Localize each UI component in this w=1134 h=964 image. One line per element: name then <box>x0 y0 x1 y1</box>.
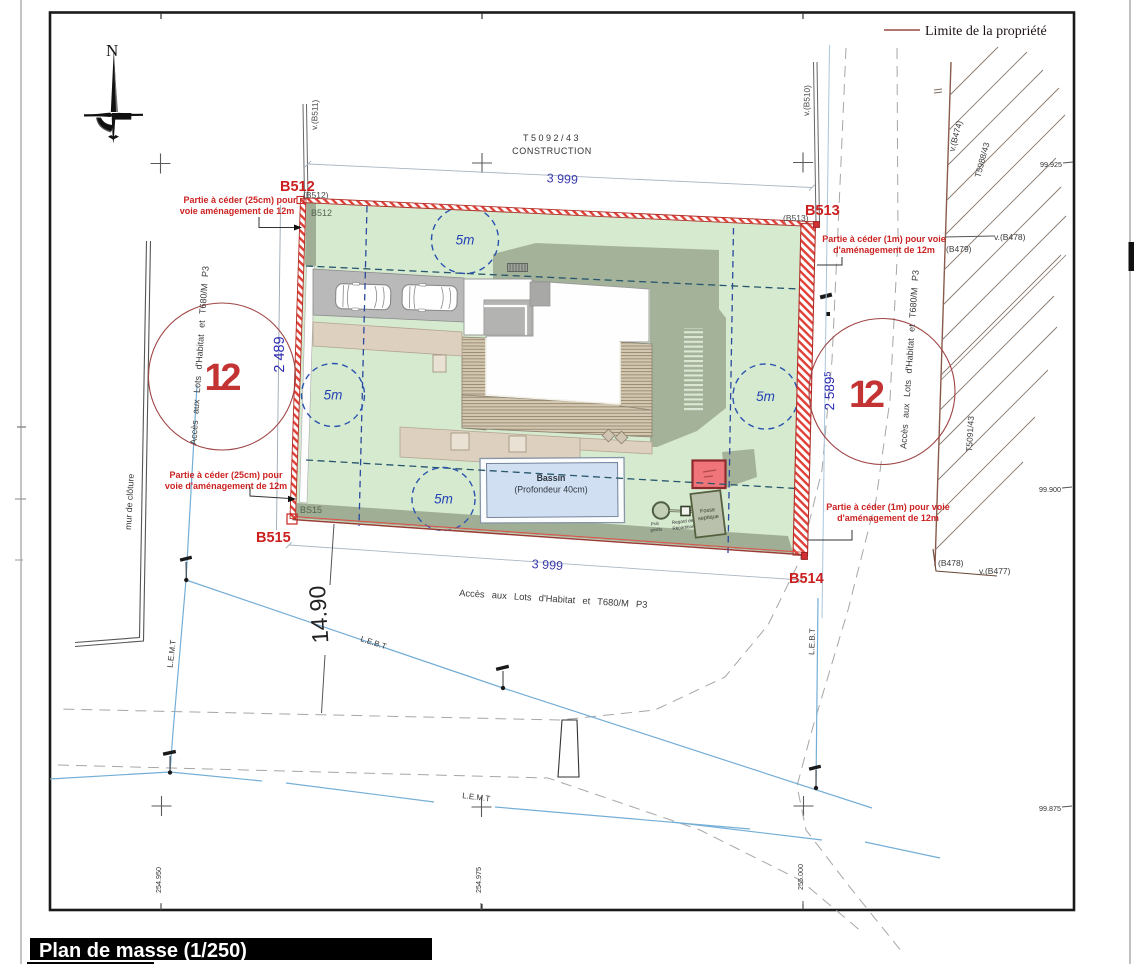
svg-text:99.925: 99.925 <box>1040 160 1062 169</box>
svg-text:voie aménagement de 12m: voie aménagement de 12m <box>180 206 295 216</box>
svg-text:(B478): (B478) <box>938 558 964 568</box>
svg-text:d'aménagement de 12m: d'aménagement de 12m <box>833 245 935 255</box>
svg-text:Partie à céder (1m) pour voie: Partie à céder (1m) pour voie <box>826 502 950 512</box>
svg-text:12: 12 <box>205 357 242 399</box>
svg-text:B513: B513 <box>805 203 840 219</box>
svg-text:254.950: 254.950 <box>154 867 163 893</box>
svg-text:5m: 5m <box>756 389 775 404</box>
svg-text:2 5895: 2 5895 <box>822 372 837 411</box>
svg-text:(B479): (B479) <box>946 244 972 254</box>
svg-text:254.975: 254.975 <box>474 867 483 893</box>
svg-text:5m: 5m <box>324 388 343 403</box>
svg-text:255.000: 255.000 <box>796 864 805 890</box>
svg-text:Accès aux Lots d'Habitat e: Accès aux Lots d'Habitat et T680/M P3 <box>898 270 920 449</box>
svg-text:Accès aux Lots d'Habitat e: Accès aux Lots d'Habitat et T680/M P3 <box>459 587 648 610</box>
svg-text:12: 12 <box>849 374 885 416</box>
svg-text:B515: B515 <box>256 530 291 546</box>
svg-text:5m: 5m <box>434 492 453 507</box>
svg-text:BS15: BS15 <box>300 505 322 515</box>
svg-text:Limite de la propriété: Limite de la propriété <box>925 24 1047 39</box>
svg-text:T5091/43: T5091/43 <box>964 415 976 452</box>
svg-text:L.E.M.T: L.E.M.T <box>166 639 178 668</box>
svg-text:(Profondeur 40cm): (Profondeur 40cm) <box>514 485 587 495</box>
svg-text:v.(B510): v.(B510) <box>801 85 812 116</box>
svg-text:T5988/43: T5988/43 <box>973 141 992 179</box>
svg-text:3 999: 3 999 <box>531 557 563 573</box>
svg-text:voie d'aménagement de 12m: voie d'aménagement de 12m <box>165 481 287 491</box>
svg-text:3 999: 3 999 <box>546 171 578 187</box>
svg-text:mur de clôture: mur de clôture <box>123 473 136 530</box>
svg-text:L.E.M.T: L.E.M.T <box>462 791 491 803</box>
svg-text:v.(B511): v.(B511) <box>309 99 320 130</box>
svg-text:(B513): (B513) <box>783 213 809 223</box>
svg-text:v.(B478): v.(B478) <box>994 232 1026 242</box>
svg-text:v.(B477): v.(B477) <box>979 566 1011 576</box>
svg-text:14.90: 14.90 <box>304 585 333 644</box>
svg-text:(B512): (B512) <box>303 190 329 200</box>
svg-text:Partie à céder (25cm) pour: Partie à céder (25cm) pour <box>169 470 283 480</box>
svg-text:B512: B512 <box>311 208 332 218</box>
svg-text:Partie à céder (1m) pour voie: Partie à céder (1m) pour voie <box>822 234 946 244</box>
svg-text:Accès aux Lots d'Habitat e: Accès aux Lots d'Habitat et T680/M P3 <box>188 266 210 445</box>
svg-text:N: N <box>106 41 118 60</box>
svg-text:L.E.B.T: L.E.B.T <box>807 628 817 655</box>
svg-text:B514: B514 <box>789 571 824 587</box>
svg-text:Puit: Puit <box>651 521 660 527</box>
svg-text:d'aménagement de 12m: d'aménagement de 12m <box>837 513 939 523</box>
svg-text:Partie à céder (25cm) pour: Partie à céder (25cm) pour <box>183 195 297 205</box>
svg-text:5m: 5m <box>456 233 475 248</box>
svg-text:99.875: 99.875 <box>1039 804 1061 813</box>
svg-text:T5092/43: T5092/43 <box>523 133 581 143</box>
svg-text:99.900: 99.900 <box>1039 485 1061 494</box>
svg-text:CONSTRUCTION: CONSTRUCTION <box>512 146 592 156</box>
svg-text:L.E.B.T: L.E.B.T <box>359 634 387 651</box>
svg-text:2 489: 2 489 <box>272 336 288 372</box>
